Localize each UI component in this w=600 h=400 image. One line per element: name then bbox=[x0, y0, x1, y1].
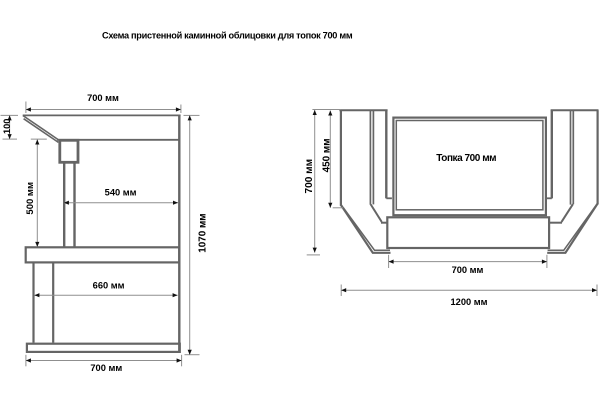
svg-text:540 мм: 540 мм bbox=[105, 187, 137, 197]
svg-text:700 мм: 700 мм bbox=[90, 363, 122, 373]
svg-text:700 мм: 700 мм bbox=[304, 159, 315, 194]
svg-text:1200 мм: 1200 мм bbox=[450, 297, 487, 307]
svg-text:500 мм: 500 мм bbox=[25, 182, 36, 215]
svg-text:1070 мм: 1070 мм bbox=[197, 213, 208, 252]
svg-text:450 мм: 450 мм bbox=[321, 138, 332, 172]
svg-text:Схема пристенной каминной обли: Схема пристенной каминной облицовки для … bbox=[102, 31, 353, 41]
svg-text:700 мм: 700 мм bbox=[87, 93, 119, 103]
svg-text:700 мм: 700 мм bbox=[452, 265, 484, 275]
svg-text:Топка 700 мм: Топка 700 мм bbox=[436, 153, 496, 164]
svg-text:660 мм: 660 мм bbox=[93, 281, 125, 291]
svg-text:100: 100 bbox=[2, 119, 12, 135]
